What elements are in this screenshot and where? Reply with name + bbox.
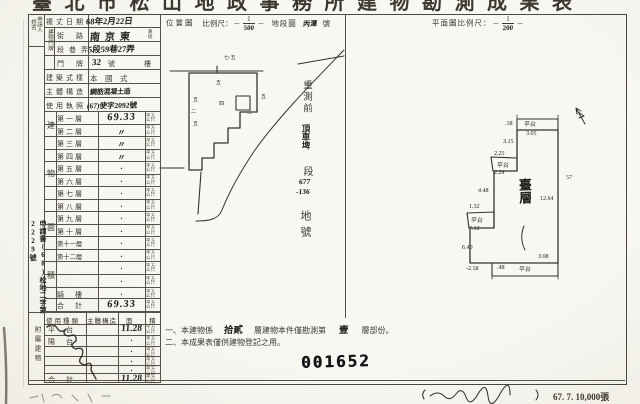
- row-value: 5段59巷27弄: [87, 43, 135, 56]
- floor-area-row: 第二層〃平方公尺: [44, 125, 160, 138]
- location-map-drawing: [160, 28, 345, 328]
- area-unit-label: 平方公尺: [146, 251, 156, 260]
- area-unit-label: 平方公尺: [146, 301, 156, 310]
- annotation-label: 3.15: [503, 139, 514, 145]
- floor-area-row: 第十一層・平方公尺: [44, 237, 160, 250]
- info-row-door: 門牌 32 號 樓: [44, 56, 160, 70]
- floor-area-row: ・平方公尺: [44, 275, 160, 288]
- floor-row-value: ・: [98, 239, 145, 248]
- building-outline: [189, 73, 257, 170]
- floor-area-row: 第九層・平方公尺: [44, 212, 160, 225]
- applicant-name-label: 姓名: [29, 19, 37, 43]
- info-row-street: 街路 南京東 路 街: [44, 28, 160, 42]
- row-label: 建築式樣: [46, 73, 86, 83]
- annotation-label: 五: [261, 93, 266, 100]
- floor-area-row: 第十二層・平方公尺: [44, 250, 160, 263]
- scale-dash: ─: [518, 20, 523, 28]
- pre-survey-prefix: 重測前: [299, 80, 313, 122]
- area-unit-label: 平方公尺: [146, 201, 156, 210]
- area-unit-label: 平方公尺: [146, 126, 156, 135]
- annotation-label: 12.64: [540, 196, 554, 202]
- floor-row-value: 69.33: [97, 112, 145, 124]
- info-row-survey-date: 複丈日期 68年2月22日: [44, 14, 160, 28]
- scale-dash: ─: [234, 20, 239, 28]
- annotation-label: 五: [193, 96, 198, 103]
- floor-plan-drawing: [348, 28, 627, 328]
- annotation-label: 五: [193, 120, 198, 127]
- road-curve: [196, 50, 344, 221]
- annotation-label: 4.48: [478, 188, 489, 194]
- row-label: 門牌: [57, 59, 95, 69]
- cropped-bottom-text: [28, 390, 138, 404]
- handwriting-tail: [522, 226, 525, 250]
- row-label: 複丈日期: [46, 17, 86, 27]
- area-unit-label: 平方公尺: [146, 164, 156, 173]
- room-label: 臺層: [518, 178, 533, 204]
- area-unit-label: 平方公尺: [146, 325, 156, 334]
- annotation-label: 3.05: [526, 131, 537, 137]
- annex-row-value: ・: [118, 357, 145, 366]
- building-inner-unit: [236, 96, 250, 110]
- floor-row-value: ・: [98, 277, 145, 286]
- pre-survey-section: 頂車埤: [300, 124, 312, 164]
- sheet-label: 地段圖: [271, 19, 297, 28]
- floor-plan-title: 平面圖比例尺：: [432, 19, 492, 28]
- annotation-label: 平台: [519, 264, 532, 273]
- annotation-label: 五: [216, 79, 221, 86]
- row-label: 主體構造: [46, 87, 86, 97]
- floor-row-value: ・: [98, 214, 145, 223]
- info-row-license: 使用執照 (67)使字2092號: [44, 98, 160, 112]
- info-row-style: 建築式樣 本 國 式: [44, 70, 160, 84]
- annotation-label: .58: [505, 121, 513, 127]
- annotation-label: .48: [497, 265, 505, 271]
- floor-area-row: 第十層・平方公尺: [44, 225, 160, 238]
- area-unit-label: 平方公尺: [146, 151, 156, 160]
- row-value: (67)使字2092號: [86, 100, 137, 112]
- floor-row-value: ・: [98, 177, 145, 186]
- area-unit-label: 平方公尺: [146, 290, 156, 299]
- floor-row-label: 第一層: [57, 114, 84, 124]
- annotation-label: 七-五: [224, 54, 236, 61]
- floor-area-row: 第一層69.33平方公尺: [44, 112, 160, 125]
- annotation-label: 二: [247, 109, 252, 116]
- area-unit-label: 平方公尺: [146, 277, 156, 286]
- annotation-label: 2.25: [494, 151, 505, 157]
- floor-row-value: ・: [98, 290, 145, 299]
- area-unit-label: 平方公尺: [146, 114, 156, 123]
- diagonal-handwriting-scribble: [40, 320, 106, 380]
- serial-stamp: 001652: [301, 351, 371, 372]
- grid-line: [44, 312, 160, 313]
- floor-row-label: 第十二層: [57, 252, 82, 261]
- annotation-label: 3.08: [538, 254, 549, 260]
- info-row-section: 段巷弄 5段59巷27弄: [44, 42, 160, 56]
- floor-row-value: ・: [98, 227, 145, 236]
- note-line-1: 一、本建物係 拾貳 層建物本件僅勘測第 壹 層部份。: [165, 322, 394, 336]
- floor-area-row: 第七層・平方公尺: [44, 187, 160, 200]
- floor-row-value: ・: [98, 252, 145, 261]
- area-unit-label: 平方公尺: [146, 226, 156, 235]
- floor-area-row: 第四層〃平方公尺: [44, 150, 160, 163]
- annotation-label: 7.12: [469, 226, 480, 232]
- note-fill-floor: 壹: [338, 322, 349, 336]
- area-unit-label: 平方公尺: [146, 264, 156, 273]
- floor-area-row: 第八層・平方公尺: [44, 200, 160, 213]
- document-title-cropped: 臺北市松山地政事務所建物勘測成果表: [32, 0, 636, 12]
- floor-row-label: 第十層: [57, 227, 84, 237]
- row-value: 鋼筋混凝土造: [90, 87, 131, 98]
- row-value: 本 國 式: [90, 73, 128, 84]
- annex-row-value: 11.28: [118, 374, 146, 384]
- floor-area-row: ・平方公尺: [44, 262, 160, 275]
- area-unit-label: 平方公尺: [146, 214, 156, 223]
- annotation-label: 2.24: [494, 170, 505, 176]
- floor-row-value: ・: [98, 264, 145, 273]
- door-number: 32: [92, 57, 102, 67]
- annex-row-value: ・: [118, 347, 145, 356]
- illegible-handwriting: [420, 388, 550, 402]
- paper-edge-mark: [0, 328, 12, 404]
- annotation-label: 平台: [524, 119, 537, 128]
- pre-survey-lot-1: 677: [299, 177, 311, 186]
- floor-area-row: 騎 樓・平方公尺: [44, 288, 160, 299]
- floor-row-label: 第六層: [57, 177, 84, 187]
- lot-boundary-line: [198, 172, 201, 214]
- annotation-label: -2.58: [466, 266, 479, 272]
- floor-row-label: 第九層: [57, 214, 84, 224]
- area-unit-label: 平方公尺: [146, 239, 156, 248]
- area-unit-label: 平方公尺: [146, 176, 156, 185]
- print-info: 67. 7. 10,000張: [553, 390, 609, 403]
- annex-row-value: 11.28: [118, 324, 146, 334]
- annotation-label: 6.40: [462, 245, 473, 251]
- scale-dash: ─: [258, 20, 263, 28]
- floor-row-label: 第二層: [57, 127, 84, 137]
- note-fill-storeys: 拾貳: [223, 322, 243, 336]
- floor-row-value: ・: [98, 164, 145, 173]
- street-suffix: 路 街: [148, 29, 153, 39]
- floor-row-value: 69.33: [97, 299, 145, 311]
- floor-area-row: 第三層〃平方公尺: [44, 137, 160, 150]
- lot-number-label: 地號: [297, 210, 313, 246]
- scale-label: 比例尺：: [202, 19, 232, 28]
- row-value: 68年2月22日: [85, 15, 133, 28]
- area-unit-label: 平方公尺: [146, 375, 156, 384]
- annotation-label: 1.32: [469, 204, 480, 210]
- annotation-label: 平台: [497, 160, 510, 169]
- annotation-label: 平台: [471, 215, 484, 224]
- floor-row-label: 第三層: [57, 139, 84, 149]
- note-line-2: 二、本成果表僅供建物登記之用。: [165, 337, 285, 348]
- pre-survey-lot-2: -136: [296, 187, 311, 196]
- location-map-title: 位置圖: [166, 19, 195, 28]
- floor-row-value: ・: [98, 202, 145, 211]
- grid-line: [28, 46, 44, 47]
- scale-dash: ─: [493, 20, 498, 28]
- floor-row-label: 第八層: [57, 202, 84, 212]
- row-label: 使用執照: [46, 101, 86, 111]
- area-unit-label: 平方公尺: [146, 189, 156, 198]
- annotation-label: 57: [566, 175, 573, 181]
- annotation-label: 二: [191, 108, 196, 115]
- grid-line: [345, 14, 346, 318]
- scribble-stroke: [47, 325, 96, 379]
- sheet-suffix: 號: [323, 19, 331, 28]
- door-number-suffix: 號: [108, 59, 115, 69]
- scanned-survey-form: 臺北市松山地政事務所建物勘測成果表 申請人 姓名 申請書(68)松地二字第222…: [0, 0, 640, 404]
- floor-area-row: 合 計69.33平方公尺: [44, 299, 160, 312]
- area-unit-label: 平方公尺: [146, 337, 156, 346]
- floor-row-label: 合 計: [57, 301, 84, 311]
- info-row-structure: 主體構造 鋼筋混凝土造: [44, 84, 160, 98]
- floor-area-row: 第六層・平方公尺: [44, 175, 160, 188]
- north-arrow-icon: [576, 108, 585, 124]
- door-floor-suffix: 樓: [144, 59, 151, 69]
- area-unit-label: 平方公尺: [146, 139, 156, 148]
- annotation-label: 四: [219, 100, 224, 107]
- floor-area-row: 第五層・平方公尺: [44, 162, 160, 175]
- floor-row-label: 第十一層: [57, 239, 82, 248]
- floor-row-label: 第七層: [57, 189, 84, 199]
- annex-row-value: ・: [118, 336, 145, 345]
- area-unit-label: 平方公尺: [146, 348, 156, 357]
- floor-row-label: 第四層: [57, 152, 84, 162]
- floor-row-label: 第五層: [57, 164, 84, 174]
- paper-crease: [23, 20, 24, 388]
- floor-row-value: ・: [98, 189, 145, 198]
